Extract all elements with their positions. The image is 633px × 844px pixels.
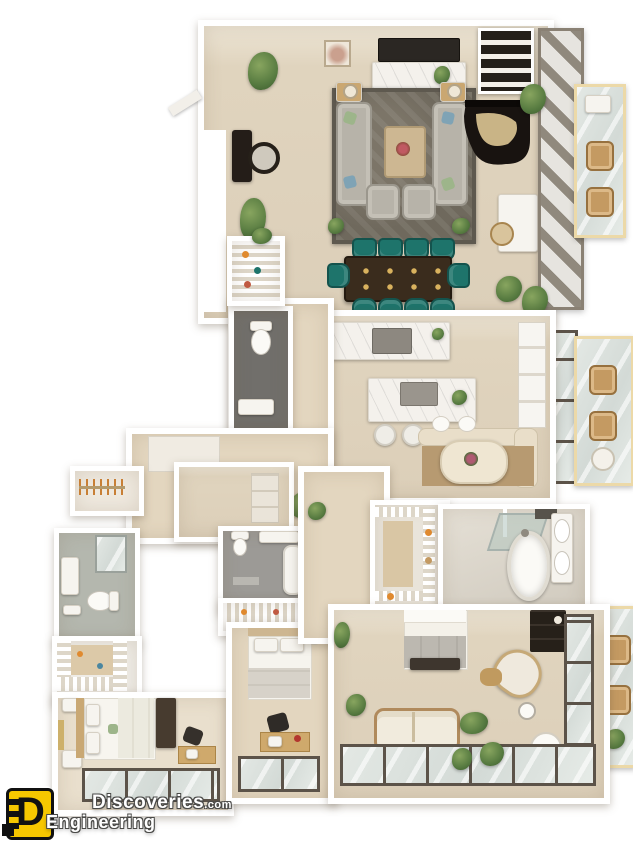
dining-chair [327, 263, 350, 288]
tv-screen [378, 38, 460, 62]
closet-floor [71, 645, 113, 675]
closet-item [97, 663, 103, 669]
nook-cushion [458, 416, 476, 432]
balcony-chair [589, 365, 617, 395]
desk-papers [268, 736, 282, 747]
closet-item [273, 609, 279, 615]
desk-chair [490, 222, 514, 246]
bed-pillow [86, 704, 100, 726]
bath-towel [63, 605, 81, 615]
entry-door-leaf [168, 90, 202, 116]
bed-blanket [248, 668, 310, 698]
toilet-bowl [251, 329, 271, 355]
closet-shelving [113, 641, 127, 691]
desk-chair [182, 725, 204, 746]
brand-tld: .com [204, 799, 232, 811]
desk-chair [266, 712, 290, 735]
loveseat-split [412, 712, 415, 742]
bed-pillows [404, 610, 466, 623]
hanger-rail [79, 486, 125, 489]
floor-lamp [518, 702, 536, 720]
balcony-chair [589, 411, 617, 441]
grand-piano [460, 98, 532, 174]
closet-item [387, 593, 394, 600]
bed-bench [410, 658, 460, 670]
powder-room [229, 306, 293, 434]
bed-headboard [76, 698, 84, 758]
bed-blanket [118, 698, 154, 758]
round-mirror [248, 142, 280, 174]
bath-mat [233, 577, 259, 585]
tub-faucet [521, 529, 529, 537]
bed-throw [108, 724, 118, 734]
master-window-east [564, 614, 594, 746]
bed-pillow [86, 732, 100, 754]
armchair [402, 184, 436, 220]
closet-item [425, 557, 432, 564]
closet-item [77, 651, 83, 657]
study-wardrobe [251, 473, 279, 523]
closet-rail [423, 507, 435, 601]
shower [95, 535, 127, 573]
table-lamp [343, 84, 358, 99]
balcony-middle [574, 336, 633, 486]
balcony-top [574, 84, 626, 238]
terrace-plant [460, 712, 488, 734]
nook-flowers [464, 452, 478, 466]
closet-rail [375, 591, 423, 601]
brand-name-line: Discoveries.com [92, 792, 232, 814]
bath-vanity [259, 531, 299, 543]
desk-lamp [294, 735, 301, 742]
logo-tab [2, 824, 14, 836]
armchair [366, 184, 400, 220]
wall-art-gold [58, 720, 64, 750]
tall-cabinets [518, 322, 546, 428]
hall-plant [308, 502, 326, 520]
floor-plant [496, 276, 522, 302]
toilet-bowl [233, 538, 247, 556]
bedroom-plant [334, 622, 350, 648]
hall-wardrobe-closet [70, 466, 144, 516]
bed-pillow [254, 638, 278, 652]
hall-closet [227, 236, 285, 306]
closet-item [425, 529, 432, 536]
brand-tagline: Engineering [46, 812, 156, 833]
balcony-chair [586, 141, 614, 171]
bedroom-middle [226, 622, 338, 804]
exterior-notch [198, 130, 226, 312]
vanity-sink [61, 557, 79, 595]
cooktop [372, 328, 412, 354]
dresser [156, 698, 176, 748]
freestanding-tub [507, 531, 551, 601]
master-bathroom [438, 504, 590, 620]
closet-item [242, 251, 249, 258]
closet-floor [383, 521, 413, 587]
closet-item [244, 281, 251, 288]
wardrobe-item [554, 616, 562, 624]
watermark: D Discoveries.com Engineering [0, 780, 260, 840]
island-sink [400, 382, 438, 406]
vanity-sink [554, 519, 570, 543]
pillow-blue [441, 111, 455, 125]
bedroom-plant [346, 694, 366, 716]
toilet-tank [109, 591, 119, 611]
balcony-table [591, 447, 615, 471]
bathroom-west [54, 528, 140, 646]
closet-item [241, 609, 247, 615]
dining-chair [447, 263, 470, 288]
closet-item [254, 267, 261, 274]
potted-plant [248, 52, 278, 90]
table-lamp [447, 84, 462, 99]
powder-sink [238, 399, 274, 415]
nook-cushion [432, 416, 450, 432]
staircase [478, 28, 534, 94]
master-bedroom [328, 604, 610, 804]
bar-stool [374, 424, 396, 446]
brand-name: Discoveries [92, 792, 204, 813]
desk-papers [186, 749, 198, 759]
balcony-cushion [585, 95, 611, 113]
floor-plan-render: D Discoveries.com Engineering [0, 0, 633, 844]
flower-centerpiece [396, 142, 410, 156]
brand-logo-letter: D [16, 790, 45, 835]
dining-table [344, 256, 452, 302]
vanity-sink [554, 551, 570, 575]
balcony-chair [586, 187, 614, 217]
ottoman [480, 668, 502, 686]
art-frame [324, 40, 351, 67]
